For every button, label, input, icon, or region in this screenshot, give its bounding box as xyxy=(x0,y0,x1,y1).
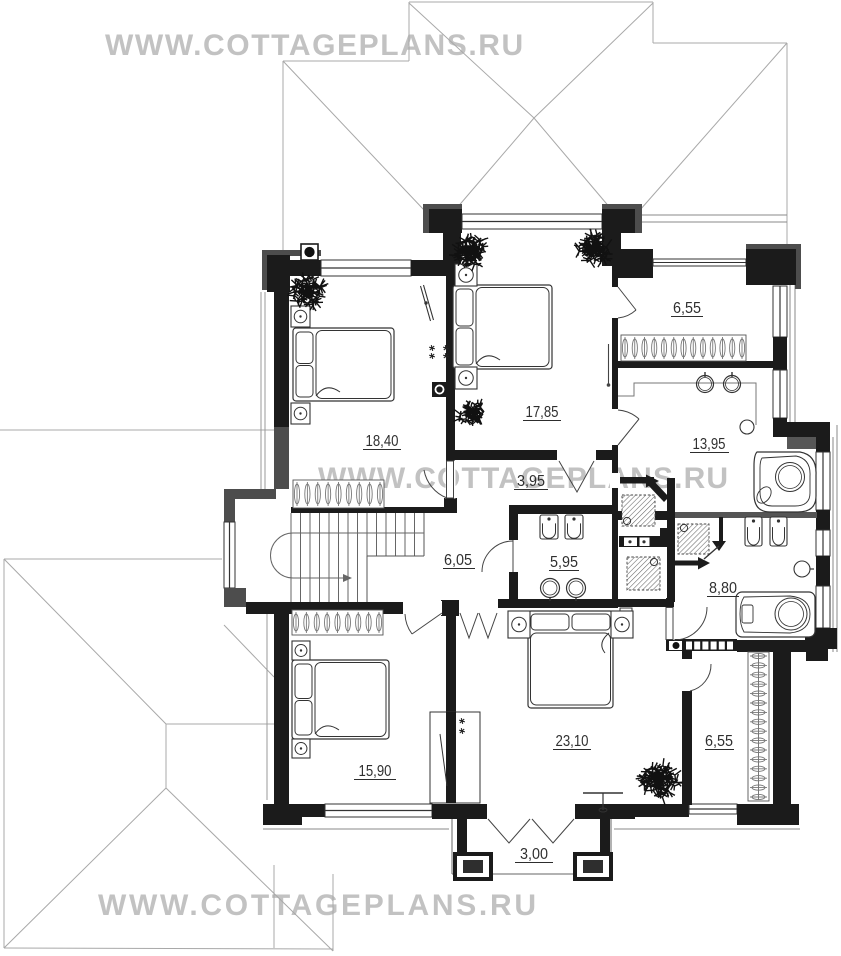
svg-text:3,00: 3,00 xyxy=(520,846,548,863)
svg-text:WWW.COTTAGEPLANS.RU: WWW.COTTAGEPLANS.RU xyxy=(105,29,525,62)
svg-text:5,95: 5,95 xyxy=(550,554,578,571)
svg-text:8,80: 8,80 xyxy=(709,580,737,597)
svg-text:3,95: 3,95 xyxy=(517,473,545,490)
svg-text:15,90: 15,90 xyxy=(359,763,392,780)
svg-text:18,40: 18,40 xyxy=(366,433,399,450)
svg-text:6,55: 6,55 xyxy=(705,733,733,750)
svg-text:WWW.COTTAGEPLANS.RU: WWW.COTTAGEPLANS.RU xyxy=(98,889,539,922)
svg-text:6,55: 6,55 xyxy=(673,300,701,317)
svg-text:17,85: 17,85 xyxy=(526,404,559,421)
svg-text:6,05: 6,05 xyxy=(444,552,472,569)
svg-text:13,95: 13,95 xyxy=(693,436,726,453)
svg-text:23,10: 23,10 xyxy=(556,733,589,750)
